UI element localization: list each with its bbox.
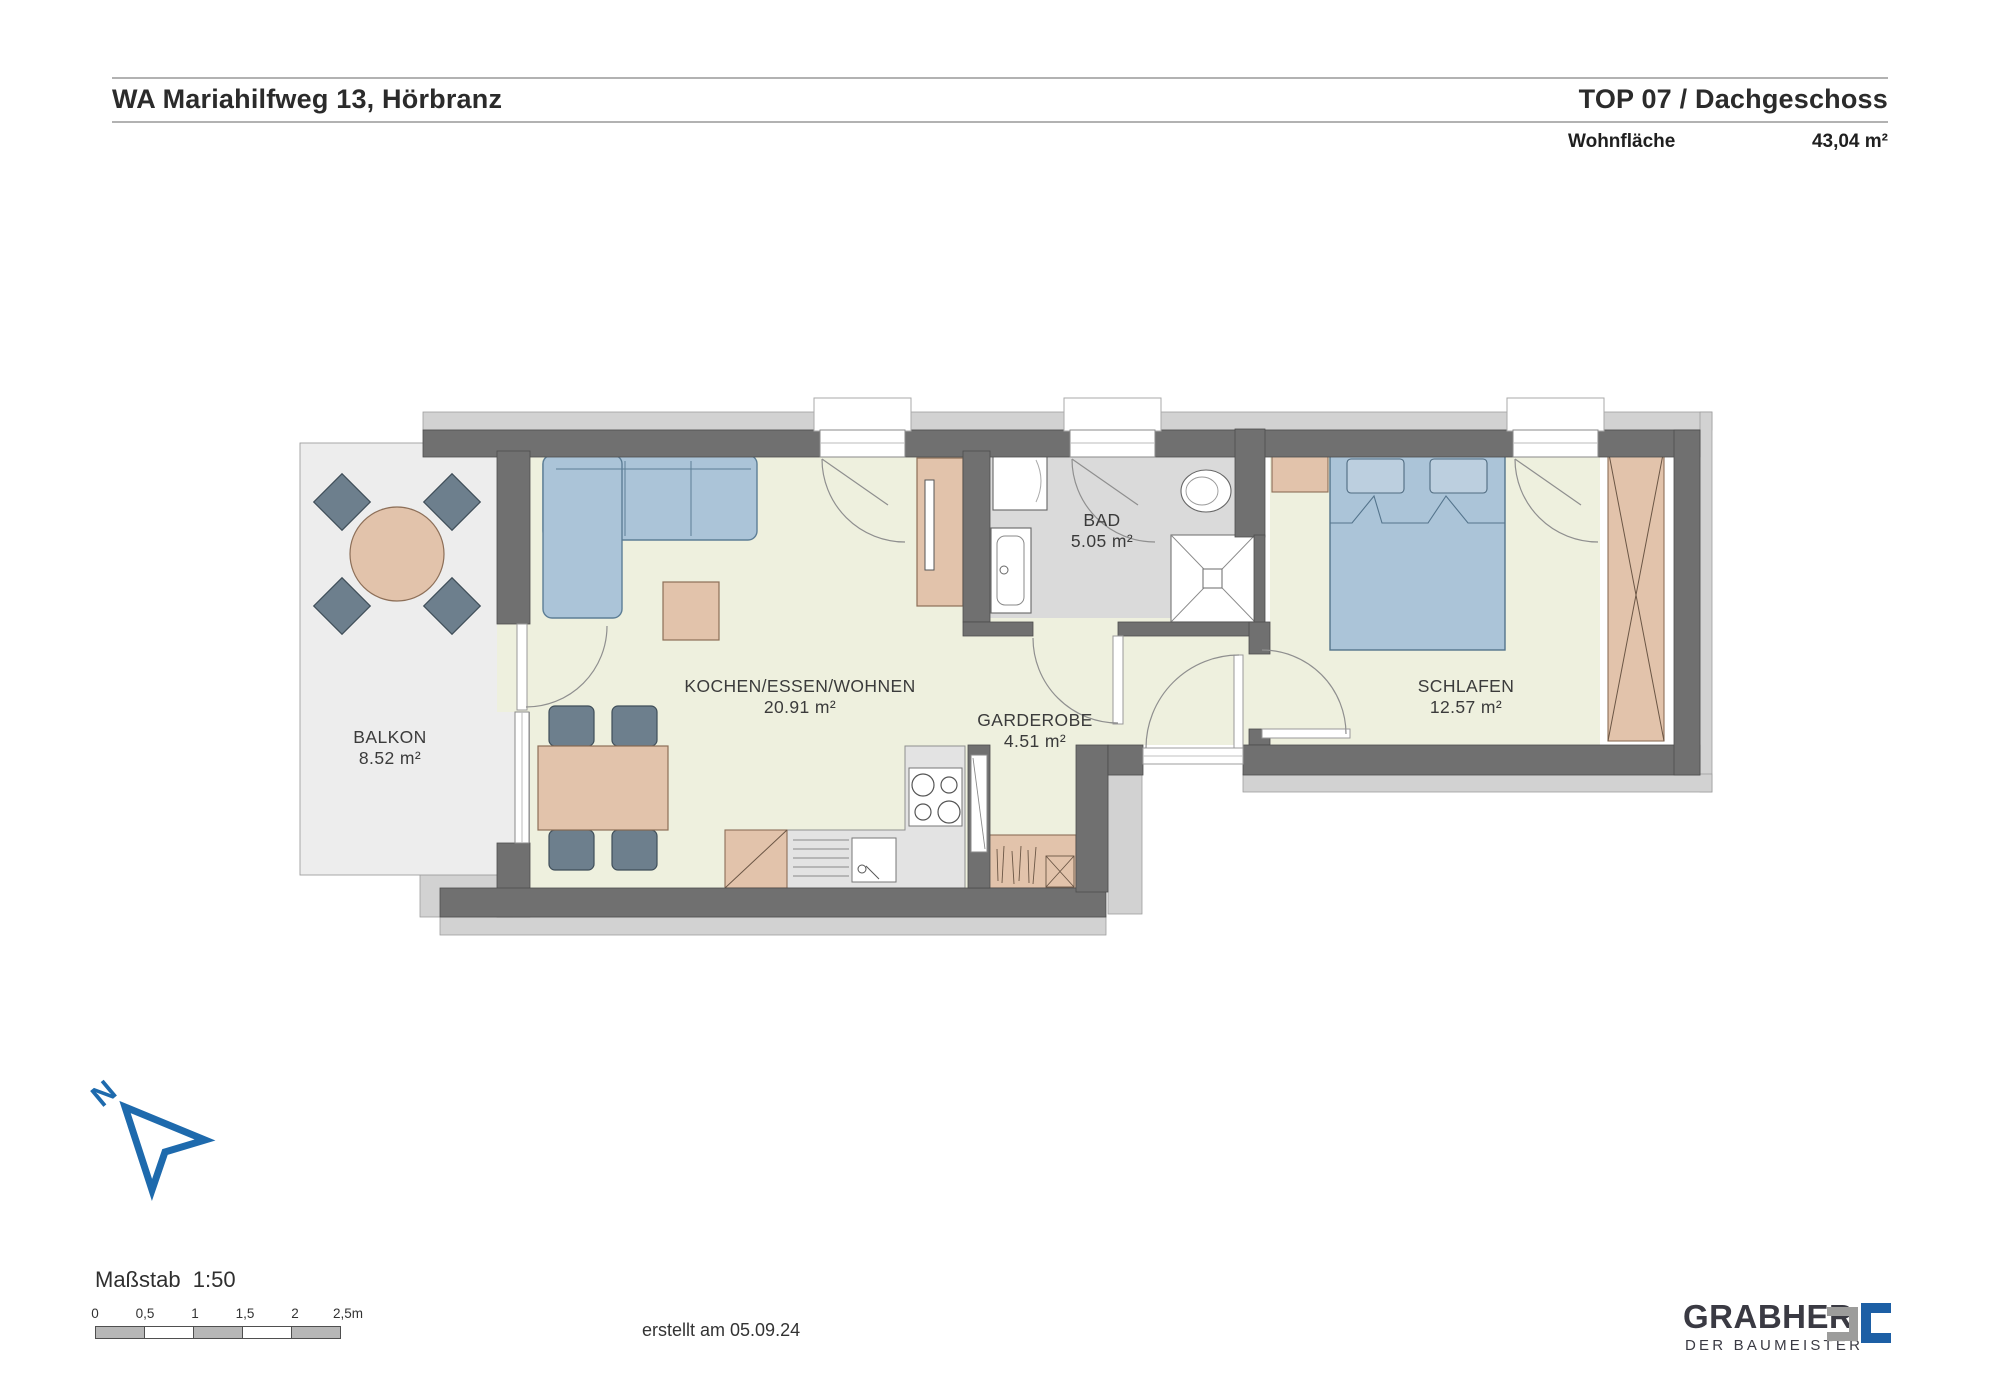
- scale-tick: 1,5: [236, 1306, 255, 1321]
- scale-tick: 0,5: [136, 1306, 155, 1321]
- toilet: [1181, 470, 1231, 512]
- kitchen-sink: [852, 838, 896, 882]
- bedroom-door-leaf: [1262, 729, 1350, 738]
- tv: [925, 480, 934, 570]
- room-label-bad: BAD 5.05 m²: [1071, 510, 1133, 552]
- roof-window-living: [814, 398, 911, 457]
- scale-title: Maßstab 1:50: [95, 1267, 236, 1293]
- floorplan-page: N WA Mariahilfweg 13, Hörbranz TOP 07 / …: [0, 0, 1999, 1399]
- sideboard: [917, 458, 963, 606]
- room-label-kochen-essen-wohnen: KOCHEN/ESSEN/WOHNEN 20.91 m²: [684, 676, 915, 718]
- bed: [1330, 449, 1505, 650]
- header-rule-bottom: [112, 121, 1888, 123]
- scale-tick: 1: [191, 1306, 199, 1321]
- kitchen-garderobe-door-leaf: [971, 755, 987, 852]
- shower: [1171, 535, 1255, 622]
- header-rule-top: [112, 77, 1888, 79]
- north-arrow-icon: N: [85, 1074, 205, 1190]
- brand-logo-bracket-gray-icon: [1827, 1307, 1858, 1341]
- living-area-value: 43,04 m²: [112, 131, 1888, 153]
- balcony-door-leaf: [517, 624, 527, 710]
- room-label-garderobe: GARDEROBE 4.51 m²: [977, 710, 1092, 752]
- roof-window-bedroom: [1507, 398, 1604, 457]
- dining-table: [538, 746, 668, 830]
- bath-door-leaf: [1113, 636, 1123, 724]
- north-label: N: [85, 1074, 123, 1113]
- brand-logo-bracket-blue-icon: [1861, 1303, 1891, 1343]
- floorplan-drawing: N: [0, 0, 1999, 1399]
- scale-bar: [95, 1326, 341, 1339]
- room-label-balkon: BALKON 8.52 m²: [353, 727, 426, 769]
- roof-window-bath: [1064, 398, 1161, 457]
- bedroom-wardrobe: [1608, 449, 1664, 741]
- garderobe-wardrobe: [988, 835, 1076, 888]
- unit-title: TOP 07 / Dachgeschoss: [112, 84, 1888, 115]
- washing-machine: [993, 452, 1047, 510]
- scale-tick: 2: [291, 1306, 299, 1321]
- balcony-table: [350, 507, 444, 601]
- room-label-schlafen: SCHLAFEN 12.57 m²: [1418, 676, 1515, 718]
- corridor-floor: [1076, 618, 1249, 745]
- scale-tick: 0: [91, 1306, 99, 1321]
- created-date: erstellt am 05.09.24: [642, 1320, 800, 1341]
- scale-tick: 2,5m: [333, 1306, 363, 1321]
- coffee-table: [663, 582, 719, 640]
- balcony-window: [515, 712, 529, 843]
